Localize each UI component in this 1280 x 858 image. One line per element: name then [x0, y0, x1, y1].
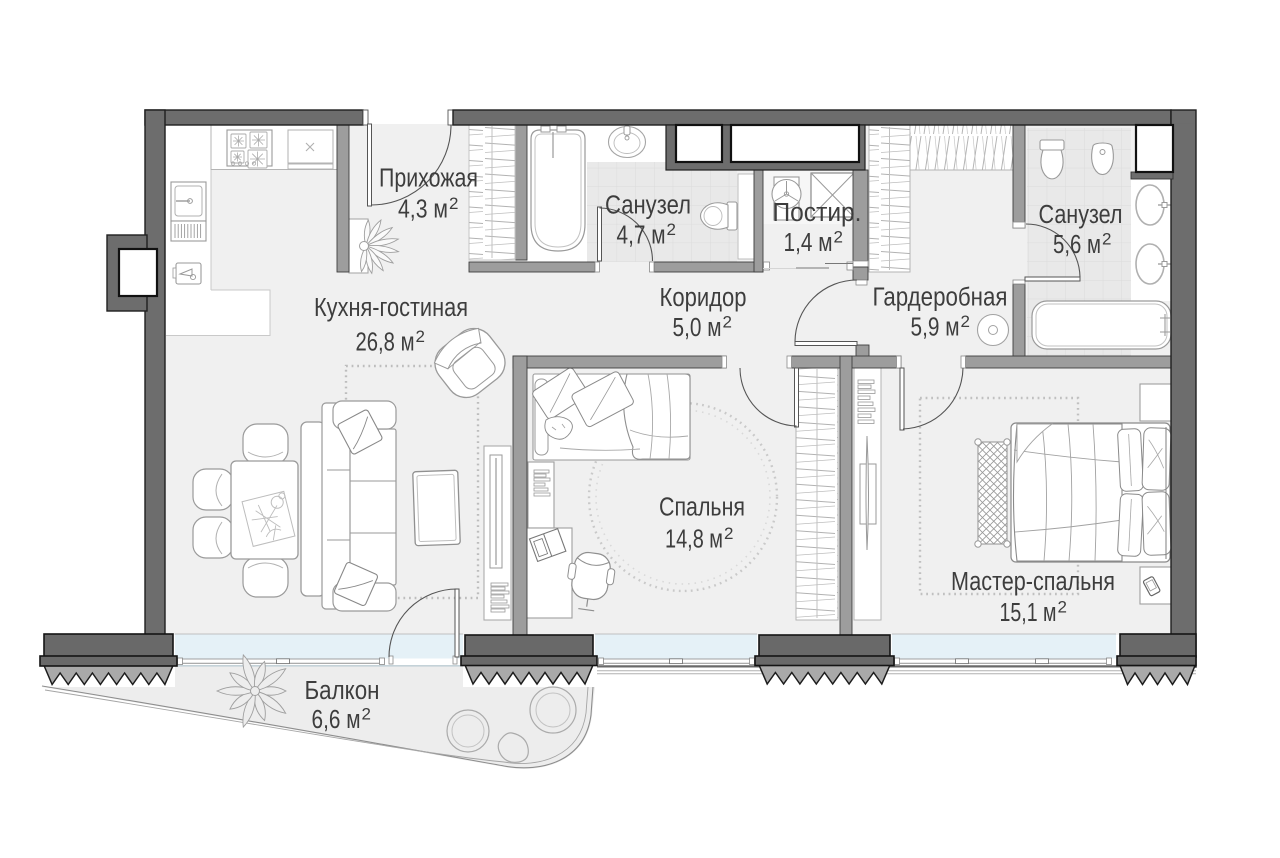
- svg-text:6,6 м: 6,6 м: [312, 706, 361, 734]
- svg-text:2: 2: [834, 228, 843, 247]
- svg-text:2: 2: [362, 705, 371, 724]
- svg-text:2: 2: [724, 524, 733, 543]
- svg-text:5,9 м: 5,9 м: [911, 314, 960, 342]
- svg-text:2: 2: [449, 194, 458, 213]
- svg-text:Гардеробная: Гардеробная: [873, 284, 1008, 312]
- svg-text:2: 2: [723, 313, 732, 332]
- svg-text:15,1 м: 15,1 м: [1000, 599, 1057, 627]
- svg-text:2: 2: [1058, 598, 1067, 617]
- svg-text:Спальня: Спальня: [659, 494, 745, 522]
- svg-text:Мастер-спальня: Мастер-спальня: [951, 568, 1115, 596]
- svg-text:5,0 м: 5,0 м: [673, 314, 722, 342]
- svg-text:2: 2: [1102, 230, 1111, 249]
- svg-text:4,7 м: 4,7 м: [617, 222, 666, 250]
- svg-text:Санузел: Санузел: [1039, 201, 1123, 229]
- svg-text:1,4 м: 1,4 м: [784, 229, 833, 257]
- svg-text:Коридор: Коридор: [660, 284, 747, 312]
- svg-text:Кухня-гостиная: Кухня-гостиная: [314, 294, 468, 322]
- svg-text:14,8 м: 14,8 м: [665, 526, 723, 554]
- svg-text:Санузел: Санузел: [605, 192, 691, 220]
- svg-text:Постир.: Постир.: [773, 199, 862, 227]
- svg-text:4,3 м: 4,3 м: [398, 196, 448, 224]
- svg-text:2: 2: [416, 327, 425, 346]
- svg-text:Балкон: Балкон: [305, 677, 380, 705]
- svg-text:Прихожая: Прихожая: [379, 165, 478, 193]
- svg-text:5,6 м: 5,6 м: [1053, 231, 1101, 259]
- svg-text:2: 2: [667, 220, 676, 239]
- svg-text:2: 2: [961, 312, 970, 331]
- svg-text:26,8 м: 26,8 м: [356, 329, 415, 357]
